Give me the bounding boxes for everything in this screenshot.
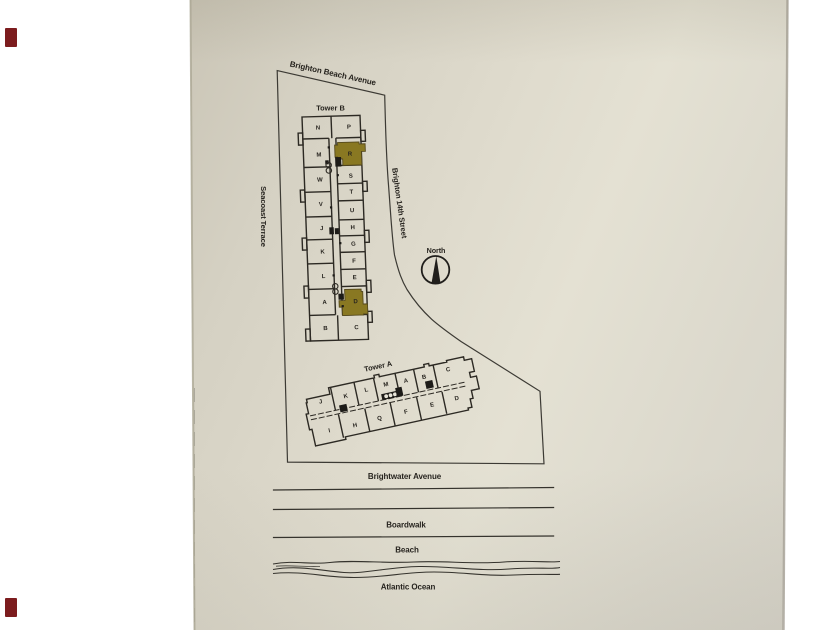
svg-text:T: T	[349, 190, 353, 196]
svg-text:F: F	[352, 259, 356, 265]
svg-text:W: W	[317, 177, 323, 183]
svg-text:U: U	[350, 208, 355, 214]
svg-text:A: A	[403, 378, 409, 385]
svg-text:S: S	[349, 174, 353, 180]
svg-text:H: H	[352, 423, 358, 430]
svg-text:North: North	[427, 246, 446, 255]
svg-text:J: J	[319, 399, 324, 406]
svg-text:N: N	[316, 126, 321, 132]
svg-text:J: J	[320, 226, 324, 232]
svg-text:K: K	[320, 249, 325, 255]
svg-text:L: L	[322, 274, 326, 280]
svg-text:F: F	[404, 409, 409, 416]
svg-text:E: E	[353, 275, 357, 281]
svg-text:P: P	[347, 125, 351, 131]
svg-text:Tower B: Tower B	[316, 104, 345, 113]
svg-text:M: M	[383, 382, 389, 389]
svg-text:Boardwalk: Boardwalk	[386, 521, 426, 530]
svg-text:E: E	[430, 402, 435, 409]
svg-text:Tower A: Tower A	[363, 359, 393, 374]
svg-text:Atlantic Ocean: Atlantic Ocean	[381, 583, 436, 592]
svg-text:B: B	[323, 326, 328, 332]
svg-text:A: A	[322, 300, 327, 306]
svg-text:H: H	[350, 225, 355, 231]
svg-text:Q: Q	[377, 416, 383, 423]
svg-text:L: L	[364, 387, 369, 394]
svg-text:G: G	[351, 242, 356, 248]
svg-text:D: D	[454, 396, 460, 403]
svg-text:C: C	[354, 325, 359, 331]
svg-text:Brightwater Avenue: Brightwater Avenue	[368, 472, 442, 481]
svg-text:Beach: Beach	[395, 546, 419, 555]
svg-text:I: I	[328, 428, 331, 434]
svg-text:K: K	[343, 393, 349, 400]
svg-text:C: C	[445, 367, 451, 374]
svg-text:Brighton 14th Street: Brighton 14th Street	[390, 167, 409, 239]
svg-text:V: V	[319, 202, 323, 208]
svg-text:M: M	[316, 152, 321, 158]
svg-text:B: B	[422, 374, 428, 381]
svg-text:Seacoast Terrace: Seacoast Terrace	[259, 186, 268, 247]
